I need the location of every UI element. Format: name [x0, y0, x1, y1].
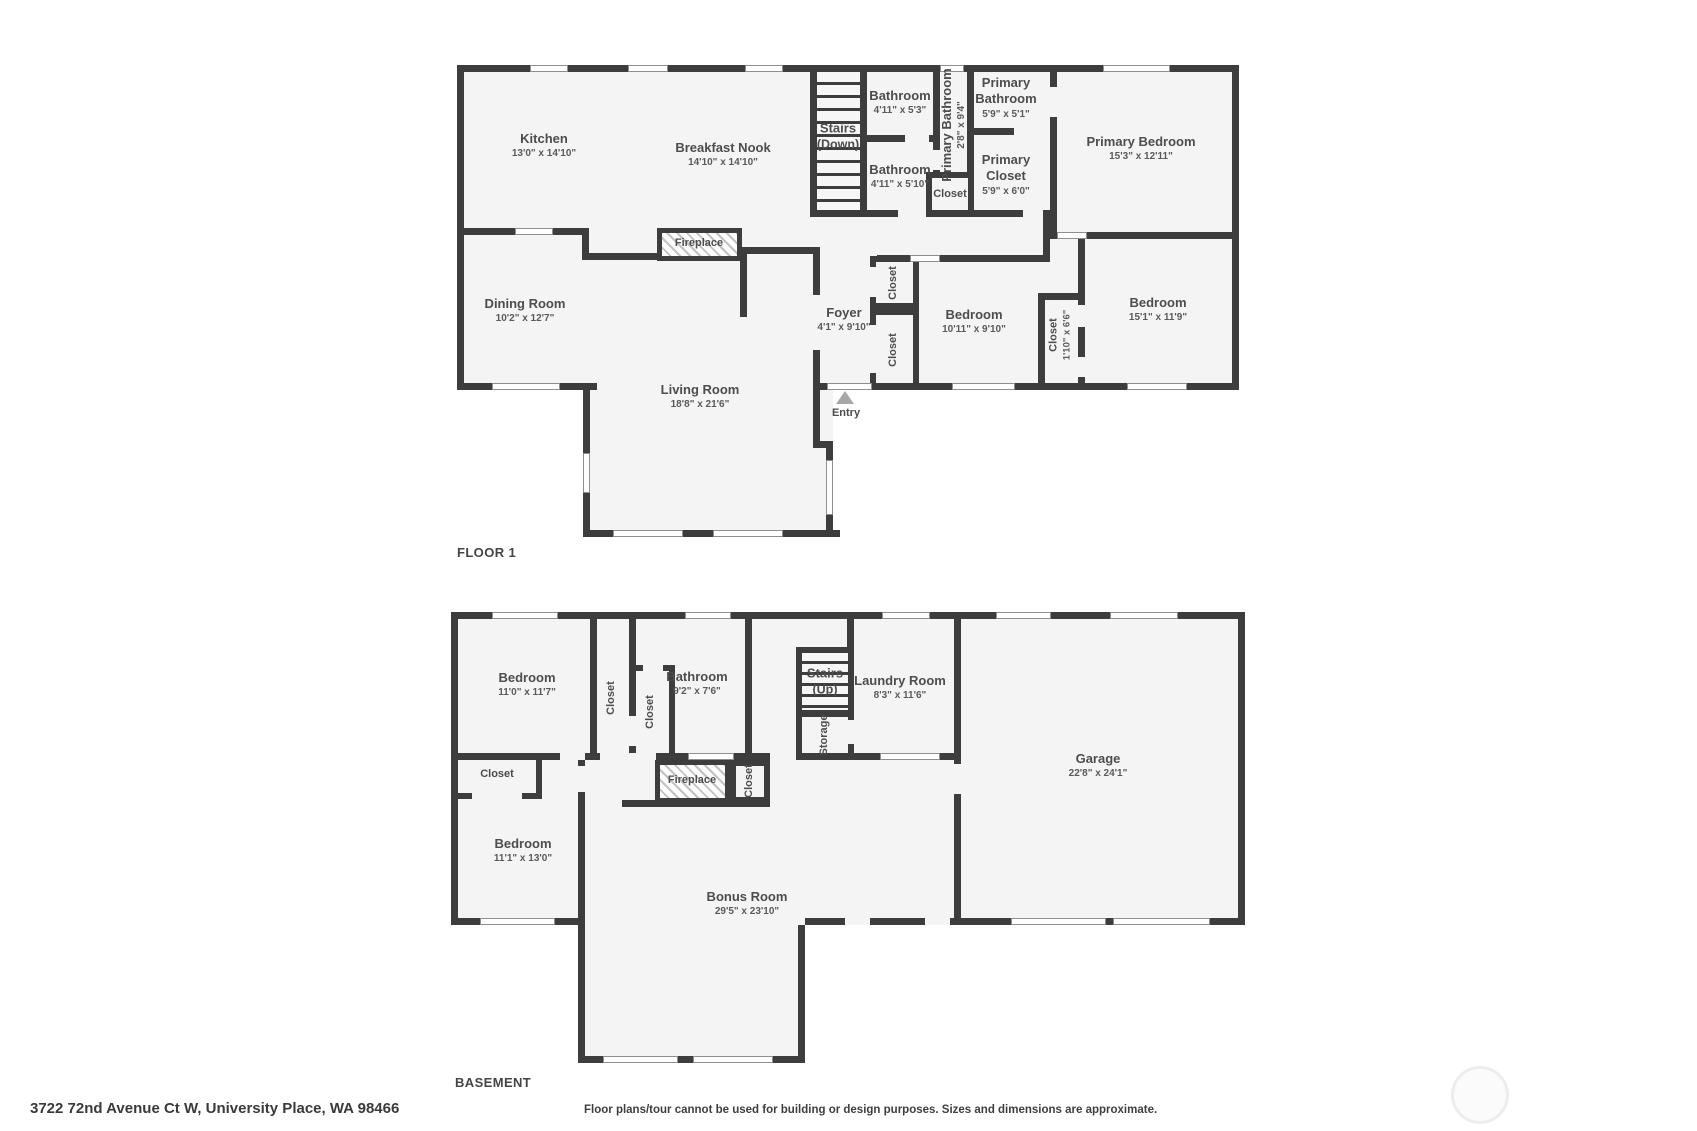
room-label-breakfast-nook: Breakfast Nook14'10" x 14'10" [675, 140, 770, 170]
window [996, 612, 1051, 619]
garage-door [1113, 918, 1210, 925]
door-opening [578, 766, 585, 792]
window [492, 612, 558, 619]
room-label-stairs-up: Stairs(Up) [807, 665, 843, 698]
room-label-bonus-room: Bonus Room29'5" x 23'10" [707, 889, 788, 919]
window [530, 65, 568, 72]
room-label-bedroom-right: Bedroom15'1" x 11'9" [1129, 295, 1187, 325]
room-label-bedroom-tl: Bedroom11'0" x 11'7" [498, 670, 556, 700]
door-opening [629, 716, 636, 746]
room-label-stairs-down: Stairs(Down) [817, 120, 859, 153]
window [693, 1056, 773, 1063]
window [910, 255, 940, 262]
room-label-kitchen: Kitchen13'0" x 14'10" [512, 131, 576, 161]
room-label-dining-room: Dining Room10'2" x 12'7" [485, 296, 566, 326]
window [628, 65, 668, 72]
entry-arrow-icon [836, 391, 854, 404]
room-label-garage: Garage22'8" x 24'1" [1069, 751, 1128, 781]
door-opening [1023, 210, 1043, 217]
room-label-closet-c: Closet1'10" x 6'6" [1048, 310, 1075, 361]
room-label-living-room: Living Room18'8" x 21'6" [661, 382, 740, 412]
floor1-plan: Kitchen13'0" x 14'10" Breakfast Nook14'1… [457, 65, 1239, 537]
door-opening [925, 918, 950, 925]
window [713, 530, 783, 537]
wall-segment [582, 228, 589, 260]
floorplan-page: Kitchen13'0" x 14'10" Breakfast Nook14'1… [0, 0, 1697, 1131]
wall-segment [847, 612, 854, 647]
wall-segment [590, 612, 597, 760]
window [882, 612, 930, 619]
wall-segment [578, 760, 585, 1063]
door-opening [847, 720, 854, 744]
room-label-foyer: Foyer4'1" x 9'10" [817, 305, 870, 335]
window [1057, 232, 1087, 239]
window [480, 918, 555, 925]
wall-segment [940, 255, 1050, 262]
room-label-storage: Storage [818, 715, 832, 756]
wall-segment [740, 254, 747, 317]
room-label-bathroom-1: Bathroom4'11" x 5'3" [869, 88, 930, 118]
wall-segment [813, 254, 820, 448]
room-label-closet-small: Closet [933, 188, 967, 202]
wall-segment [974, 128, 1014, 135]
window [688, 753, 734, 760]
door-opening [870, 325, 876, 373]
door-opening [898, 210, 926, 217]
door-opening [600, 753, 656, 760]
wall-segment [742, 247, 820, 254]
window [1103, 65, 1170, 72]
room-label-closet-fp: Closet [743, 764, 757, 798]
door-opening [954, 764, 961, 794]
room-label-bathroom-2: Bathroom4'11" x 5'10" [869, 162, 930, 192]
door-opening [643, 665, 663, 671]
door-opening [905, 135, 929, 142]
window [745, 65, 783, 72]
room-label-primary-bedroom: Primary Bedroom15'3" x 12'11" [1086, 134, 1195, 164]
door-opening [1078, 305, 1085, 327]
room-label-closet-mid: Closet [480, 768, 514, 782]
door-opening [1050, 87, 1057, 117]
window [1127, 383, 1187, 390]
floor-area [578, 925, 805, 1063]
door-opening [870, 267, 876, 297]
room-label-fireplace: Fireplace [668, 774, 716, 788]
wall-segment [860, 65, 867, 217]
room-label-laundry: Laundry Room8'3" x 11'6" [854, 673, 946, 703]
floor1-title: FLOOR 1 [457, 545, 516, 560]
room-label-closet-strip: Closet [605, 681, 619, 715]
wall-segment [745, 612, 752, 760]
window [685, 612, 731, 619]
door-opening [845, 918, 870, 925]
window [492, 383, 560, 390]
wall-segment [798, 925, 805, 1063]
watermark-circle [1451, 1066, 1509, 1124]
wall-segment [810, 210, 867, 217]
room-label-primary-bathroom: Primary Bathroom5'9" x 5'1" [969, 75, 1043, 121]
room-label-bathroom: Bathroom9'2" x 7'6" [666, 669, 727, 699]
entry-door [827, 383, 872, 390]
window [826, 460, 833, 515]
room-label-closet-b: Closet [887, 333, 901, 367]
room-label-bedroom-2: Bedroom11'1" x 13'0" [494, 836, 552, 866]
room-label-primary-closet: Primary Closet5'9" x 6'0" [969, 152, 1043, 198]
property-address: 3722 72nd Avenue Ct W, University Place,… [30, 1100, 399, 1117]
basement-title: BASEMENT [455, 1075, 531, 1090]
window [613, 530, 683, 537]
wall-segment [1232, 65, 1239, 390]
room-label-closet-2: Closet [644, 695, 658, 729]
entry-label: Entry [832, 407, 860, 421]
door-opening [560, 753, 585, 760]
wall-segment [589, 253, 660, 260]
room-label-bedroom-mid: Bedroom10'11" x 9'10" [942, 307, 1006, 337]
disclaimer-text: Floor plans/tour cannot be used for buil… [584, 1104, 1157, 1116]
window [880, 753, 940, 760]
door-opening [1078, 357, 1085, 377]
window [515, 228, 553, 235]
basement-plan: Bedroom11'0" x 11'7" Closet Closet Bathr… [451, 612, 1245, 1063]
window [952, 383, 1015, 390]
garage-door [1011, 918, 1106, 925]
room-label-primary-bathroom-hall: Primary Bathroom2'8" x 9'4" [939, 68, 969, 181]
window [1110, 612, 1178, 619]
wall-segment [1238, 612, 1245, 925]
door-opening [472, 793, 522, 799]
room-label-fireplace: Fireplace [675, 237, 723, 251]
window [603, 1056, 678, 1063]
room-label-closet-a: Closet [887, 266, 901, 300]
window [583, 453, 590, 493]
wall-segment [1038, 293, 1045, 383]
